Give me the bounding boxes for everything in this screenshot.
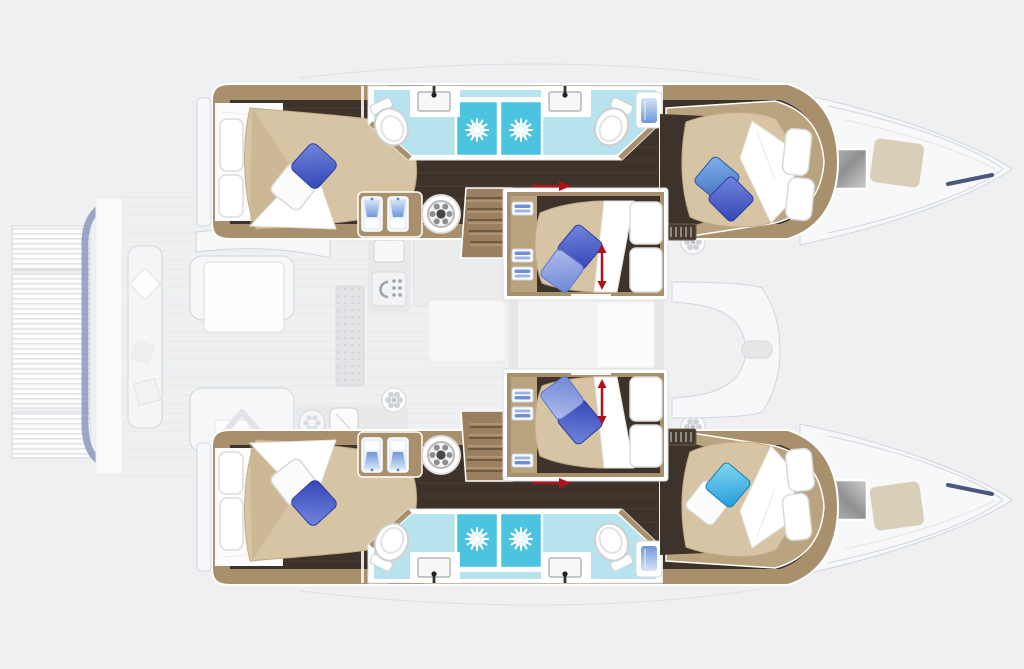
aft-bench [128, 246, 162, 428]
galley-sink [374, 240, 404, 262]
forward-cockpit-table [742, 341, 772, 358]
transom-walkway [96, 198, 122, 474]
aft-platform-slats [12, 226, 90, 458]
floor-plan-canvas [0, 0, 1024, 669]
catamaran-floor-plan [0, 0, 1024, 669]
mid-gap-panel [506, 300, 666, 370]
coffee-table [204, 262, 284, 332]
galley-fan-icon [382, 388, 406, 412]
nav-seat-ghost [428, 300, 506, 362]
galley-mat [336, 286, 364, 386]
